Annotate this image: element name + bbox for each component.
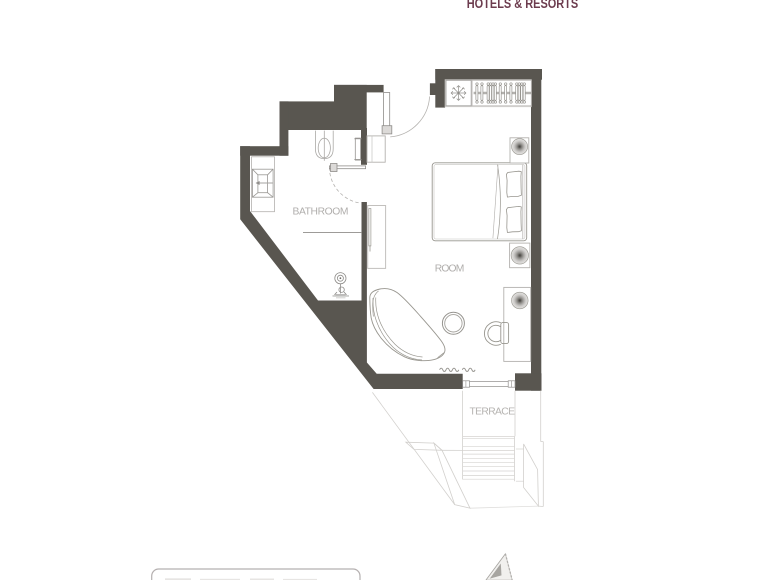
svg-text:TERRACE: TERRACE [470, 407, 516, 418]
svg-text:ROOM: ROOM [435, 264, 465, 275]
svg-text:BATHROOM: BATHROOM [293, 206, 349, 217]
svg-text:HOTELS & RESORTS: HOTELS & RESORTS [467, 0, 579, 11]
